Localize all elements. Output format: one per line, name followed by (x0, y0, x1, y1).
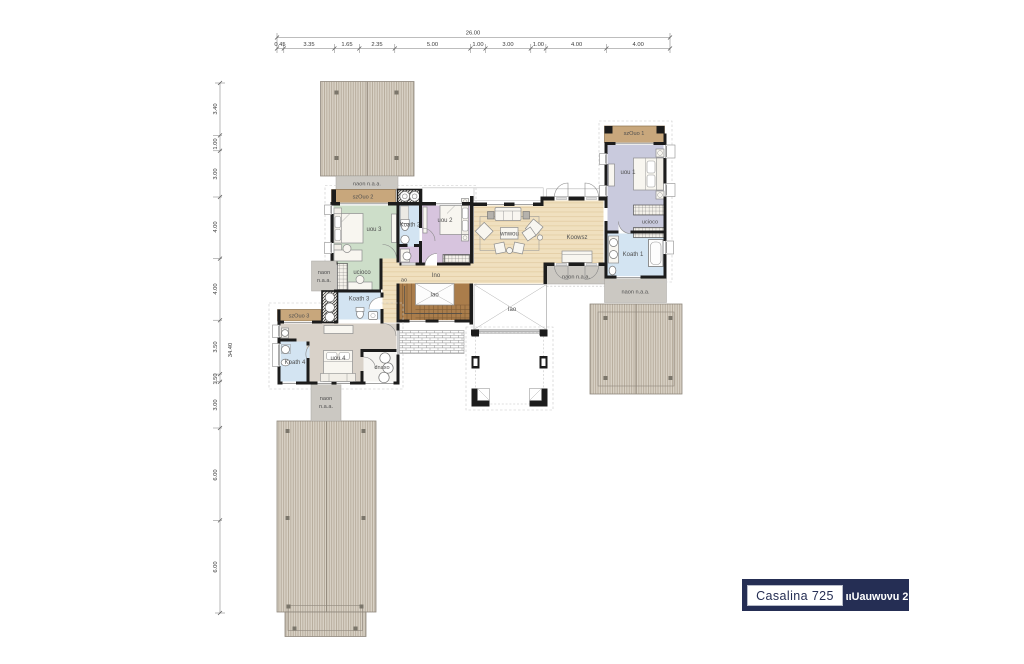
svg-text:4.00: 4.00 (213, 221, 219, 232)
svg-text:dnaxo: dnaxo (374, 365, 389, 371)
svg-text:Koath 3: Koath 3 (349, 297, 370, 303)
svg-text:1.00: 1.00 (533, 42, 544, 48)
svg-text:34.40: 34.40 (228, 343, 234, 358)
svg-text:ιιUauwυνu 2: ιιUauwυνu 2 (846, 591, 909, 603)
svg-text:Ino: Ino (432, 273, 441, 279)
svg-text:3.35: 3.35 (303, 42, 314, 48)
svg-text:szOuo 3: szOuo 3 (289, 314, 310, 320)
svg-text:4.00: 4.00 (213, 283, 219, 294)
svg-text:1.65: 1.65 (341, 42, 352, 48)
svg-text:uou 1: uou 1 (620, 170, 636, 176)
svg-text:1.00: 1.00 (472, 42, 483, 48)
svg-text:n.a.a.: n.a.a. (317, 278, 331, 284)
svg-text:5.00: 5.00 (427, 42, 438, 48)
svg-text:Iao: Iao (430, 293, 439, 299)
svg-text:Koath 2: Koath 2 (400, 223, 421, 229)
svg-text:naon n.a.a.: naon n.a.a. (353, 182, 381, 188)
svg-text:4.00: 4.00 (571, 42, 582, 48)
svg-text:Koowsz: Koowsz (566, 235, 587, 241)
svg-text:3.50: 3.50 (213, 341, 219, 352)
svg-text:ucioco: ucioco (353, 270, 371, 276)
svg-text:ao: ao (401, 278, 407, 284)
svg-text:26.00: 26.00 (466, 31, 481, 37)
svg-text:szOuo 1: szOuo 1 (624, 131, 645, 137)
svg-text:1.50: 1.50 (213, 373, 219, 384)
svg-text:6.00: 6.00 (213, 561, 219, 572)
svg-text:4.00: 4.00 (633, 42, 644, 48)
svg-text:n.a.a.: n.a.a. (319, 404, 333, 410)
svg-text:naon: naon (320, 396, 332, 402)
svg-text:6.00: 6.00 (213, 469, 219, 480)
svg-text:uou 2: uou 2 (437, 218, 453, 224)
svg-text:Iao: Iao (508, 307, 517, 313)
svg-text:3.00: 3.00 (213, 399, 219, 410)
svg-text:2.35: 2.35 (371, 42, 382, 48)
svg-text:1.00: 1.00 (213, 138, 219, 149)
svg-text:uou 4: uou 4 (330, 356, 346, 362)
svg-text:3.00: 3.00 (502, 42, 513, 48)
svg-text:uou 3: uou 3 (366, 227, 382, 233)
svg-text:naon: naon (318, 270, 330, 276)
svg-text:3.00: 3.00 (213, 168, 219, 179)
svg-text:Koath 1: Koath 1 (623, 252, 644, 258)
svg-text:Casalina 725: Casalina 725 (756, 589, 834, 603)
svg-text:0.45: 0.45 (274, 42, 285, 48)
svg-text:naon n.a.a.: naon n.a.a. (622, 290, 650, 296)
svg-text:ucioco: ucioco (642, 220, 658, 226)
svg-text:wnwou: wnwou (499, 232, 519, 238)
svg-text:szOuo 2: szOuo 2 (353, 195, 374, 201)
svg-text:3.40: 3.40 (213, 103, 219, 114)
svg-text:Koath 4: Koath 4 (285, 360, 306, 366)
